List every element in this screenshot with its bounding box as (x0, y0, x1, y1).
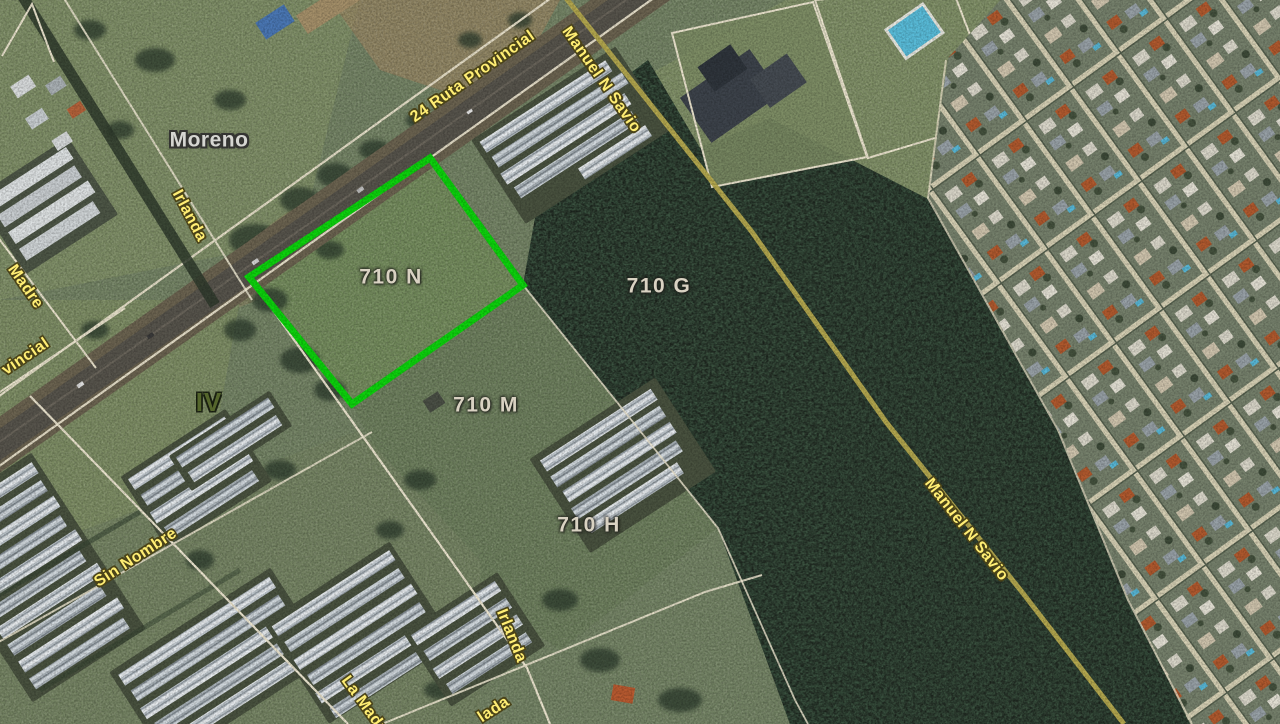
satellite-canvas (0, 0, 1280, 724)
map-viewport[interactable]: Moreno24 Ruta ProvincialManuel N SavioIr… (0, 0, 1280, 724)
